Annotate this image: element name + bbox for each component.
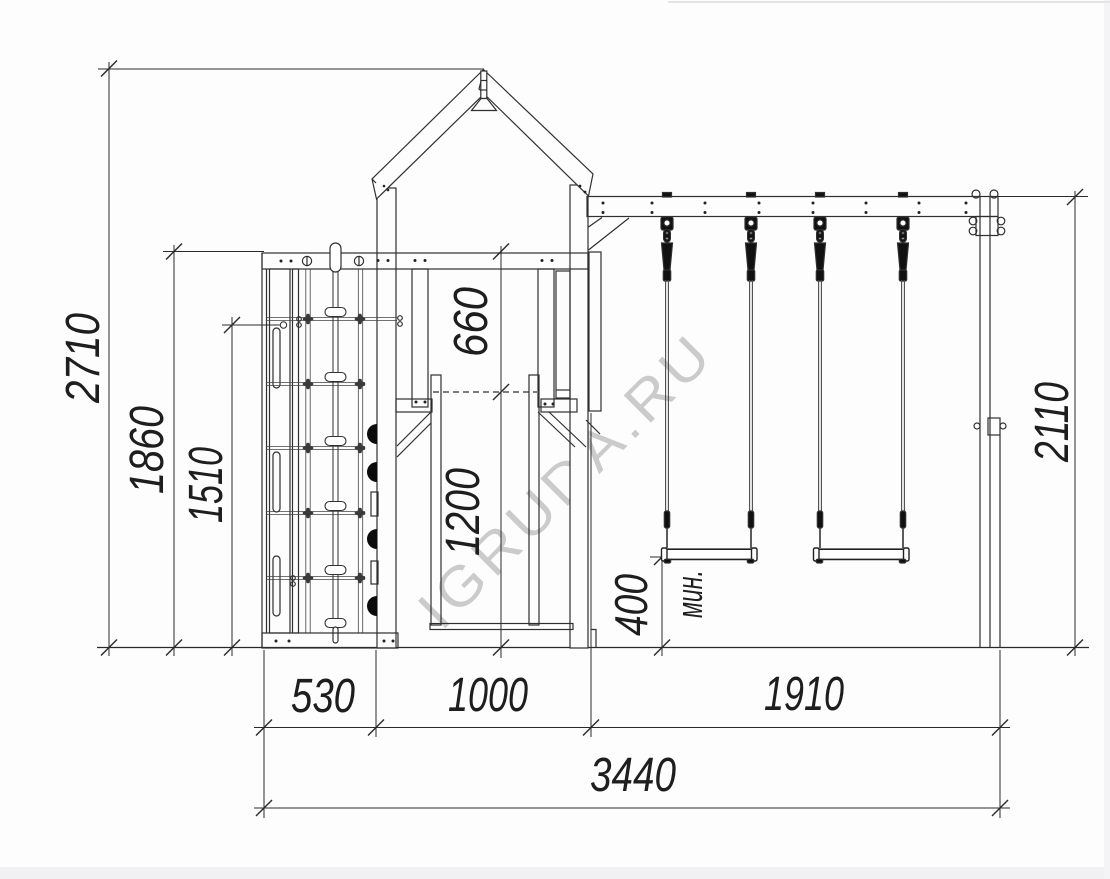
- svg-text:1000: 1000: [448, 669, 528, 722]
- svg-text:2710: 2710: [57, 313, 110, 404]
- svg-text:400: 400: [605, 574, 657, 636]
- svg-text:1860: 1860: [121, 406, 174, 494]
- svg-text:1510: 1510: [180, 447, 233, 523]
- svg-text:1910: 1910: [764, 668, 844, 721]
- svg-text:мин.: мин.: [669, 570, 710, 618]
- svg-text:3440: 3440: [590, 749, 676, 802]
- svg-text:1200: 1200: [437, 468, 490, 556]
- svg-text:530: 530: [291, 670, 355, 723]
- svg-text:2110: 2110: [1026, 382, 1079, 463]
- svg-text:660: 660: [445, 287, 498, 357]
